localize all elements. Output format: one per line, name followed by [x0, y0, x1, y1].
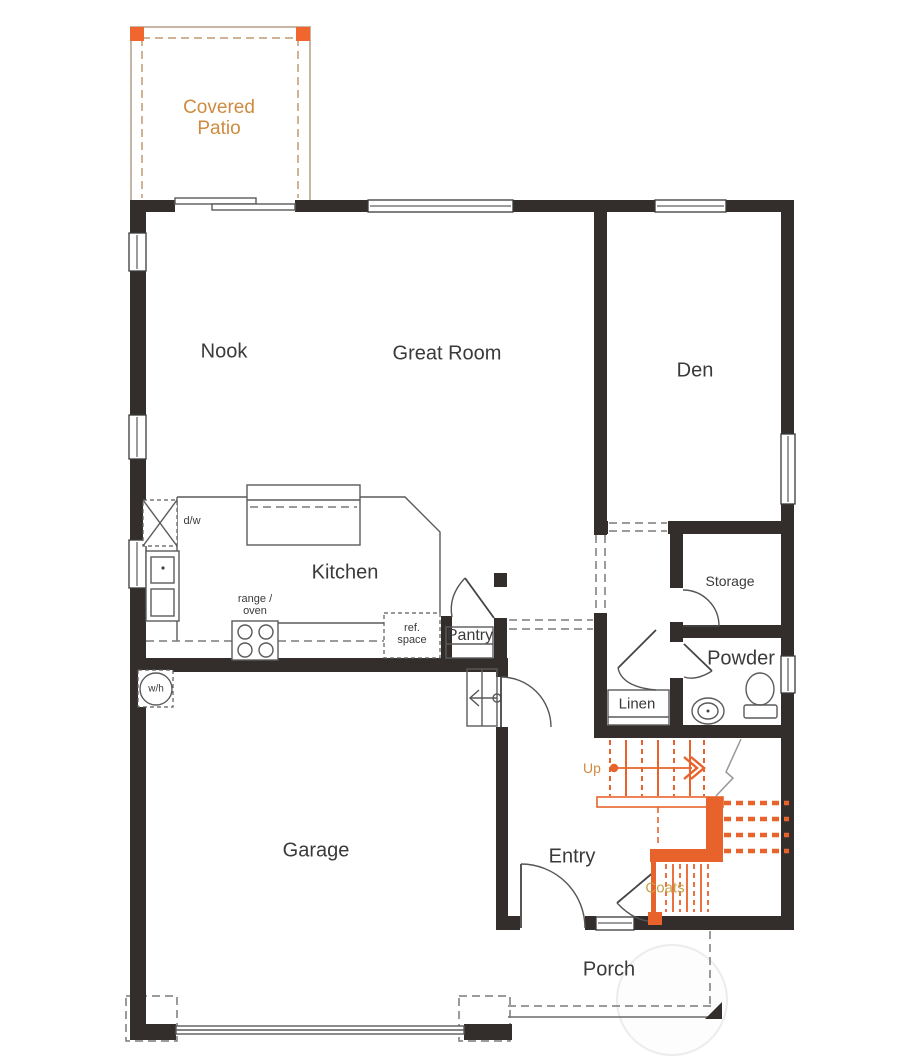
- pantry-door: [451, 578, 494, 618]
- patio-post: [130, 27, 144, 41]
- cased-opening-dashes: [509, 523, 667, 629]
- stair-break-line: [716, 739, 741, 796]
- room-label-kitchen: Kitchen: [312, 562, 379, 585]
- window: [129, 233, 146, 271]
- patio-post: [296, 27, 310, 41]
- powder-sink: [692, 698, 724, 724]
- ref-space-label: ref. space: [397, 622, 426, 646]
- range-oven-label: range / oven: [238, 593, 272, 617]
- window: [129, 415, 146, 459]
- floor-plan: Covered Patio Nook Great Room Den Kitche…: [0, 0, 900, 1059]
- windows: [129, 200, 795, 930]
- room-label-coats: Coats: [645, 880, 684, 897]
- dishwasher-label: d/w: [183, 515, 200, 527]
- front-door: [521, 864, 585, 928]
- kitchen-counters: [143, 485, 440, 660]
- room-label-storage: Storage: [705, 573, 754, 589]
- window: [655, 200, 726, 212]
- staircase: [597, 739, 789, 925]
- toilet: [744, 673, 777, 718]
- room-label-entry: Entry: [549, 846, 596, 869]
- room-label-covered-patio: Covered Patio: [183, 97, 255, 139]
- dishwasher: [143, 500, 177, 546]
- room-label-linen: Linen: [619, 696, 656, 713]
- window: [596, 917, 634, 930]
- kitchen-island: [247, 485, 360, 545]
- room-label-porch: Porch: [583, 959, 635, 982]
- range-oven: [232, 621, 278, 660]
- floor-plan-linework: [0, 0, 900, 1059]
- garage-door: [176, 1026, 464, 1034]
- room-label-pantry: Pantry: [447, 627, 493, 645]
- kitchen-sink: [146, 551, 179, 621]
- room-label-great-room: Great Room: [393, 343, 502, 366]
- room-label-den: Den: [677, 360, 714, 383]
- sliding-door: [175, 198, 295, 210]
- window: [781, 656, 795, 693]
- garage-entry-door: [467, 669, 551, 727]
- room-label-garage: Garage: [283, 840, 350, 863]
- room-label-nook: Nook: [201, 341, 248, 364]
- stair-landing: [597, 797, 723, 807]
- window: [129, 540, 146, 588]
- room-label-powder: Powder: [707, 648, 775, 671]
- window: [368, 200, 513, 212]
- linen-door: [618, 630, 656, 690]
- window: [781, 434, 795, 504]
- water-heater-label: w/h: [148, 684, 164, 695]
- walls: [130, 200, 794, 1040]
- up-label: Up: [583, 760, 601, 776]
- storage-door: [683, 590, 719, 626]
